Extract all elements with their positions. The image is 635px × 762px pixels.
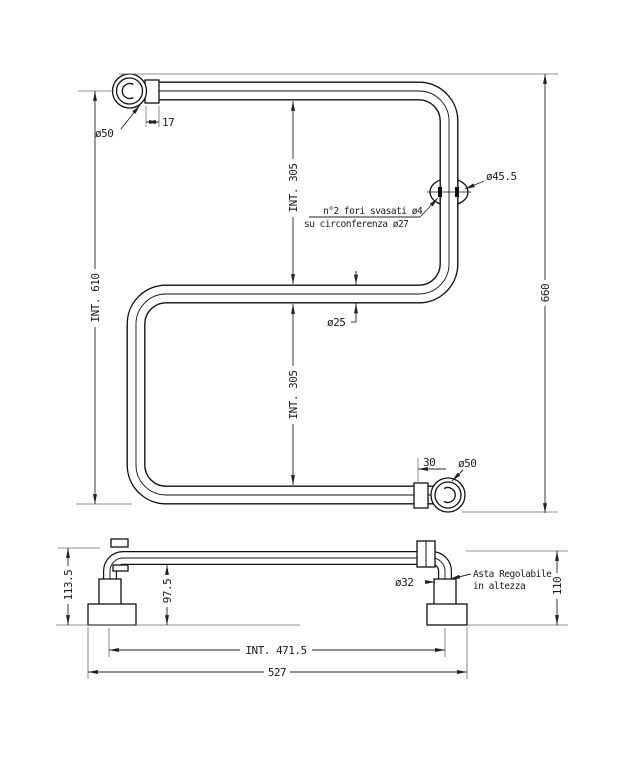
lower-int-305-label: INT. 305: [287, 371, 300, 420]
adjustable-rod-note: Asta Regolabile in altezza: [450, 569, 552, 592]
adjustable-note-line2: in altezza: [473, 581, 525, 592]
collar-30-label: 30: [423, 456, 435, 469]
right-wall-plate: [427, 604, 467, 625]
left-wall-plate: [88, 604, 136, 625]
hole-note-line1: n°2 fori svasati ø4: [323, 206, 423, 217]
side-left-collar-bottom: [113, 565, 128, 571]
bracket-top-dia-label: ø50: [95, 127, 113, 140]
label-rod-dia32: ø32: [395, 576, 435, 589]
top-left-bracket: [113, 74, 147, 108]
adjustable-note-line1: Asta Regolabile: [473, 569, 552, 580]
upper-int-305-label: INT. 305: [287, 164, 300, 213]
right-adjustable-rod: [434, 579, 456, 606]
height-113-5-label: 113.5: [62, 570, 75, 601]
dimension-internal-height-610: INT. 610: [76, 91, 132, 504]
technical-drawing-page: 660 INT. 610 INT. 305 INT. 305 ø25: [0, 0, 635, 762]
tube-diameter-label: ø25: [327, 316, 345, 329]
label-flange-dia45-5: ø45.5: [465, 170, 517, 189]
left-adjustable-rod: [99, 579, 121, 606]
bracket-bottom-dia-label: ø50: [458, 457, 476, 470]
front-view: [113, 74, 472, 512]
collar-17-label: 17: [162, 116, 174, 129]
towel-rail-drawing: 660 INT. 610 INT. 305 INT. 305 ø25: [0, 0, 635, 762]
bottom-collar: [414, 483, 428, 508]
height-110-label: 110: [551, 577, 564, 595]
dimension-97-5: 97.5: [161, 565, 175, 625]
flange-diameter-label: ø45.5: [486, 170, 517, 183]
overall-height-label: 660: [539, 284, 552, 302]
bottom-right-bracket: [431, 478, 465, 512]
internal-height-label: INT. 610: [89, 274, 102, 323]
label-bracket-top-dia50: ø50: [95, 105, 140, 140]
dimension-collar-17: 17: [146, 106, 174, 129]
dimension-collar-30: 30: [418, 456, 446, 482]
side-left-collar-top: [111, 539, 128, 547]
side-right-collar: [417, 541, 435, 567]
label-bracket-bottom-dia50: ø50: [452, 457, 476, 481]
hole-note-line2: su circonferenza ø27: [304, 219, 408, 230]
dimension-int-471-5: INT. 471.5: [109, 628, 445, 657]
dimension-lower-int-305: INT. 305: [287, 304, 301, 485]
rod-diameter-label: ø32: [395, 576, 413, 589]
towel-rail-tube: [136, 91, 449, 495]
overall-width-label: 527: [268, 666, 286, 679]
hole-note: n°2 fori svasati ø4 su circonferenza ø27: [304, 198, 438, 230]
internal-width-label: INT. 471.5: [245, 644, 306, 657]
height-97-5-label: 97.5: [161, 579, 174, 604]
dimension-upper-int-305: INT. 305: [287, 101, 301, 284]
